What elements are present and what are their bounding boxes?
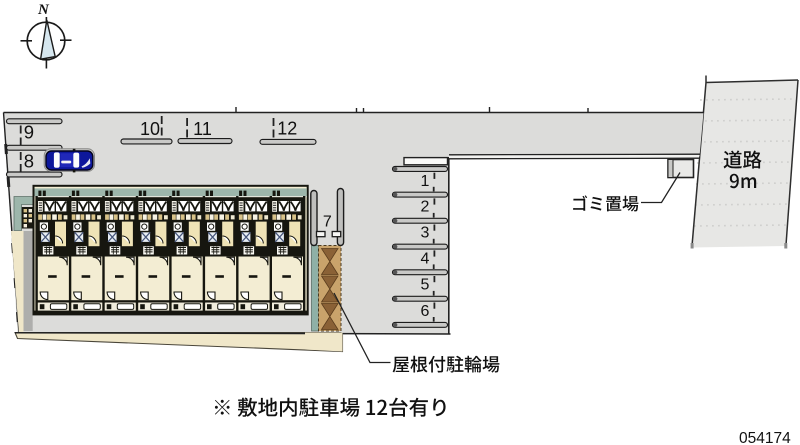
svg-text:7: 7 (323, 214, 332, 231)
svg-text:9: 9 (24, 122, 34, 143)
svg-text:8: 8 (24, 151, 34, 172)
svg-text:3: 3 (421, 225, 430, 242)
svg-text:1: 1 (421, 173, 430, 190)
svg-text:5: 5 (421, 276, 430, 293)
svg-text:054174: 054174 (739, 430, 791, 445)
svg-text:N: N (37, 2, 50, 18)
svg-text:6: 6 (421, 303, 430, 320)
svg-text:10: 10 (140, 119, 160, 139)
svg-text:2: 2 (421, 199, 430, 216)
svg-text:11: 11 (193, 119, 212, 139)
svg-text:12: 12 (277, 119, 297, 139)
svg-text:4: 4 (421, 250, 430, 267)
